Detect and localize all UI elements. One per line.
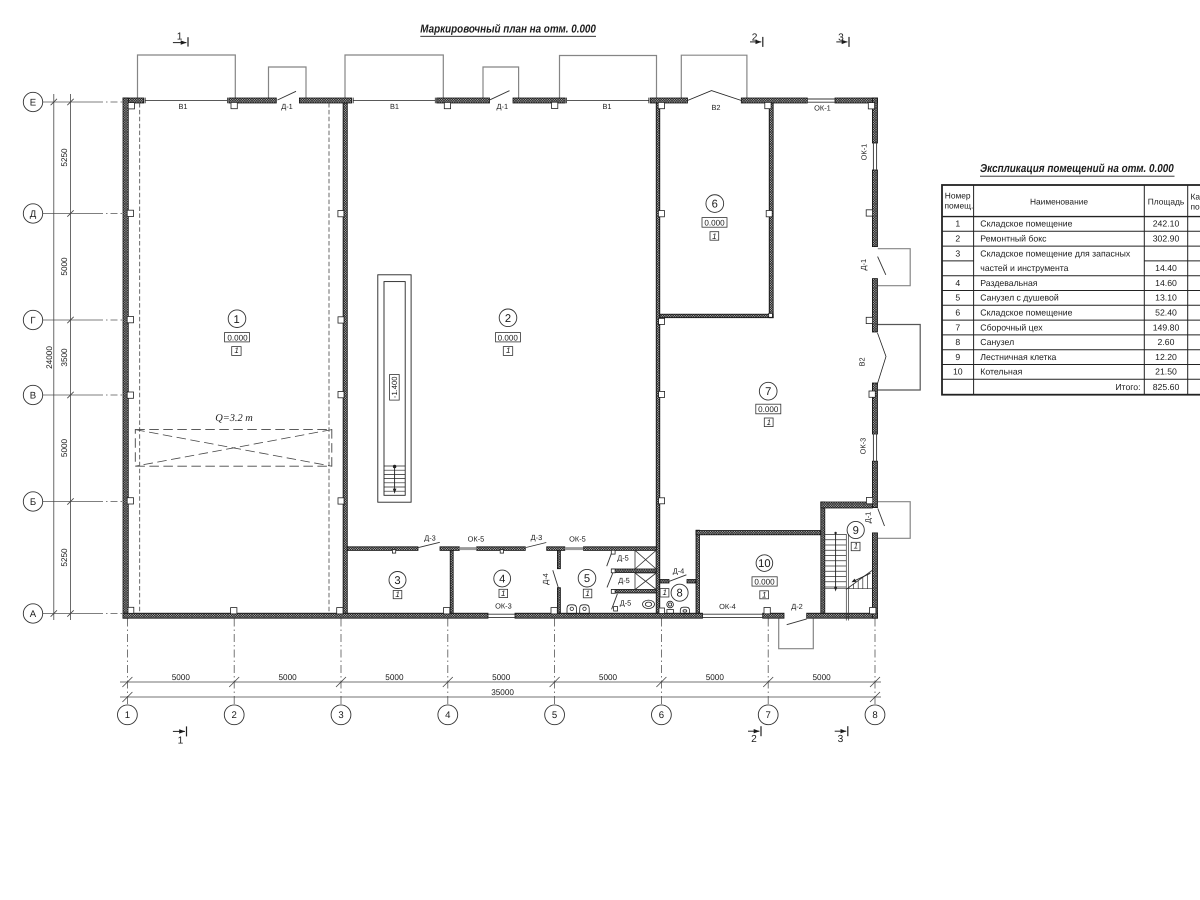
svg-text:Е: Е xyxy=(30,97,36,108)
svg-text:242.10: 242.10 xyxy=(1153,219,1180,229)
svg-text:2.60: 2.60 xyxy=(1158,337,1175,347)
svg-text:Сборочный цех: Сборочный цех xyxy=(980,322,1043,332)
svg-text:4: 4 xyxy=(955,278,960,288)
svg-text:Д-4: Д-4 xyxy=(673,567,685,576)
svg-text:В2: В2 xyxy=(711,103,720,112)
svg-text:ОК-5: ОК-5 xyxy=(569,535,586,544)
svg-text:Q=3.2 т: Q=3.2 т xyxy=(215,413,253,424)
svg-text:0.000: 0.000 xyxy=(227,334,248,343)
svg-text:Номер: Номер xyxy=(945,191,971,201)
svg-text:3: 3 xyxy=(955,248,960,258)
svg-text:5: 5 xyxy=(552,710,557,721)
svg-text:0.000: 0.000 xyxy=(758,405,779,414)
svg-text:Лестничная клетка: Лестничная клетка xyxy=(980,352,1056,362)
svg-text:ОК-4: ОК-4 xyxy=(719,602,736,611)
svg-text:1: 1 xyxy=(395,590,399,599)
svg-text:В2: В2 xyxy=(858,357,867,366)
svg-text:В1: В1 xyxy=(602,102,611,111)
svg-text:ОК-3: ОК-3 xyxy=(495,602,512,611)
svg-text:2: 2 xyxy=(232,710,237,721)
svg-text:5250: 5250 xyxy=(60,148,69,167)
svg-text:21.50: 21.50 xyxy=(1155,367,1177,377)
svg-text:В: В xyxy=(30,390,36,401)
svg-text:12.20: 12.20 xyxy=(1155,352,1177,362)
svg-text:5000: 5000 xyxy=(278,673,297,682)
svg-text:0.000: 0.000 xyxy=(704,219,725,228)
svg-text:Д-3: Д-3 xyxy=(424,534,436,543)
svg-text:Маркировочный план на отм. 0.0: Маркировочный план на отм. 0.000 xyxy=(420,24,596,36)
svg-text:Складское помещение: Складское помещение xyxy=(980,308,1072,318)
svg-text:24000: 24000 xyxy=(45,346,54,369)
svg-text:1: 1 xyxy=(233,314,239,326)
svg-text:5000: 5000 xyxy=(60,257,69,276)
svg-text:3: 3 xyxy=(838,734,844,745)
svg-text:5000: 5000 xyxy=(599,673,618,682)
svg-text:Д-1: Д-1 xyxy=(864,512,873,524)
svg-text:7: 7 xyxy=(766,710,771,721)
svg-text:Д-3: Д-3 xyxy=(531,533,543,542)
svg-text:Котельная: Котельная xyxy=(980,367,1022,377)
svg-text:Итого:: Итого: xyxy=(1115,382,1140,392)
svg-text:2: 2 xyxy=(955,234,960,244)
svg-text:2: 2 xyxy=(752,33,758,44)
svg-text:1: 1 xyxy=(125,710,130,721)
svg-text:Д-1: Д-1 xyxy=(859,259,868,271)
svg-text:помещ.: помещ. xyxy=(945,201,974,211)
svg-text:5250: 5250 xyxy=(60,548,69,567)
svg-text:частей и инструмента: частей и инструмента xyxy=(980,263,1068,273)
svg-text:ОК-5: ОК-5 xyxy=(468,535,485,544)
svg-text:1: 1 xyxy=(178,736,184,747)
svg-text:Складское помещение для запасн: Складское помещение для запасных xyxy=(980,248,1131,258)
svg-text:3500: 3500 xyxy=(60,348,69,367)
svg-text:Д-5: Д-5 xyxy=(620,599,632,608)
svg-text:Г: Г xyxy=(30,315,36,326)
svg-text:5000: 5000 xyxy=(172,673,191,682)
svg-text:-1.400: -1.400 xyxy=(390,377,399,399)
svg-text:Д: Д xyxy=(30,209,37,220)
svg-text:1: 1 xyxy=(585,589,589,598)
svg-text:Д-5: Д-5 xyxy=(617,554,629,563)
svg-text:Д-4: Д-4 xyxy=(541,573,550,585)
svg-text:Площадь: Площадь xyxy=(1148,197,1185,207)
svg-text:5000: 5000 xyxy=(60,438,69,457)
svg-text:13.10: 13.10 xyxy=(1155,293,1177,303)
svg-text:3: 3 xyxy=(338,710,343,721)
svg-text:по: по xyxy=(1191,202,1200,212)
svg-text:2: 2 xyxy=(505,313,511,325)
svg-text:5000: 5000 xyxy=(385,673,404,682)
svg-text:5000: 5000 xyxy=(706,673,725,682)
svg-text:5000: 5000 xyxy=(492,673,511,682)
svg-text:1: 1 xyxy=(955,219,960,229)
svg-text:2: 2 xyxy=(751,734,757,745)
svg-text:35000: 35000 xyxy=(491,688,514,697)
svg-text:3: 3 xyxy=(394,575,400,587)
svg-text:Б: Б xyxy=(30,497,36,508)
svg-text:Ка: Ка xyxy=(1191,192,1200,202)
svg-text:ОК-1: ОК-1 xyxy=(860,144,869,161)
svg-text:ОК-3: ОК-3 xyxy=(859,438,868,455)
svg-text:14.60: 14.60 xyxy=(1155,278,1177,288)
svg-text:3: 3 xyxy=(838,33,844,44)
svg-text:1: 1 xyxy=(662,588,666,597)
svg-text:10: 10 xyxy=(953,367,963,377)
svg-text:ОК-1: ОК-1 xyxy=(814,103,831,112)
svg-text:8: 8 xyxy=(872,710,877,721)
svg-text:4: 4 xyxy=(499,573,505,585)
svg-text:1: 1 xyxy=(501,589,505,598)
svg-text:0.000: 0.000 xyxy=(754,577,775,586)
svg-text:Раздевальная: Раздевальная xyxy=(980,278,1038,288)
svg-text:4: 4 xyxy=(445,710,451,721)
svg-text:14.40: 14.40 xyxy=(1155,263,1177,273)
svg-text:1: 1 xyxy=(177,32,183,43)
svg-text:Д-5: Д-5 xyxy=(618,576,630,585)
svg-text:1: 1 xyxy=(234,346,238,355)
svg-text:8: 8 xyxy=(676,588,682,600)
svg-text:6: 6 xyxy=(955,308,960,318)
svg-text:Экспликация помещений на отм.: Экспликация помещений на отм. 0.000 xyxy=(980,163,1174,175)
svg-text:6: 6 xyxy=(712,199,718,211)
svg-text:5000: 5000 xyxy=(812,673,831,682)
svg-text:Д-2: Д-2 xyxy=(791,602,803,611)
svg-text:Складское помещение: Складское помещение xyxy=(980,219,1072,229)
svg-text:10: 10 xyxy=(758,558,770,570)
svg-text:В1: В1 xyxy=(178,102,187,111)
svg-text:52.40: 52.40 xyxy=(1155,308,1177,318)
svg-text:Наименование: Наименование xyxy=(1030,197,1088,207)
svg-text:1: 1 xyxy=(854,542,858,551)
svg-text:5: 5 xyxy=(955,293,960,303)
svg-text:1: 1 xyxy=(506,346,510,355)
svg-text:7: 7 xyxy=(765,386,771,398)
svg-text:9: 9 xyxy=(853,525,859,537)
svg-text:7: 7 xyxy=(955,322,960,332)
svg-text:1: 1 xyxy=(712,232,716,241)
svg-text:1: 1 xyxy=(767,418,771,427)
svg-text:9: 9 xyxy=(955,352,960,362)
svg-text:6: 6 xyxy=(659,710,664,721)
svg-text:А: А xyxy=(30,609,37,620)
svg-text:149.80: 149.80 xyxy=(1153,322,1180,332)
svg-text:0.000: 0.000 xyxy=(498,334,519,343)
svg-text:825.60: 825.60 xyxy=(1153,382,1180,392)
svg-text:Ремонтный бокс: Ремонтный бокс xyxy=(980,234,1047,244)
svg-text:8: 8 xyxy=(955,337,960,347)
svg-text:Санузел: Санузел xyxy=(980,337,1014,347)
svg-text:Д-1: Д-1 xyxy=(281,102,293,111)
svg-text:Д-1: Д-1 xyxy=(497,102,509,111)
svg-text:Санузел с душевой: Санузел с душевой xyxy=(980,293,1059,303)
svg-text:1: 1 xyxy=(762,590,766,599)
svg-text:В1: В1 xyxy=(390,102,399,111)
svg-text:302.90: 302.90 xyxy=(1153,234,1180,244)
svg-text:5: 5 xyxy=(584,573,590,585)
